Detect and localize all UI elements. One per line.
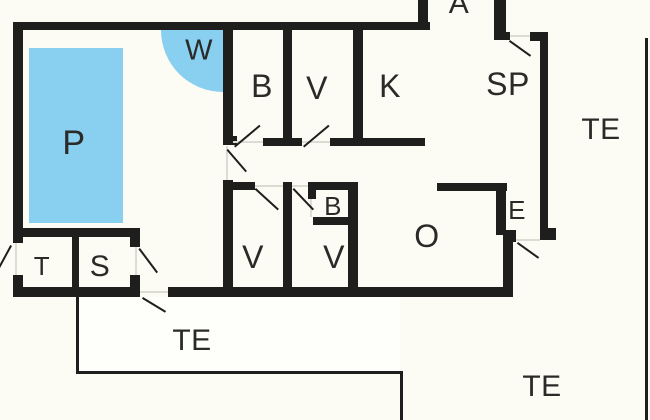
room-label-bath-north: B <box>251 70 273 102</box>
room-label-bedroom-north: V <box>306 72 328 104</box>
sp-door-gap <box>510 35 530 37</box>
wall-outer-top <box>13 22 430 30</box>
toilet-door-gap <box>15 243 17 275</box>
wall-bath-small-west-stub <box>308 182 316 199</box>
wall-pool-east-lower <box>223 180 233 287</box>
wall-outer-right-cap-south <box>540 228 556 240</box>
pool-door-leaf <box>226 149 247 172</box>
sauna-door-gap <box>135 247 137 275</box>
bedroom-north-door-leaf <box>303 125 329 148</box>
wall-alcove-west <box>418 0 428 30</box>
bedroom-sw-door-gap <box>255 185 283 187</box>
floorplan-canvas: PWBVKSPATEEOBVVTSTETE <box>0 0 650 420</box>
wall-v-k-south-wall <box>330 138 425 146</box>
wall-pool-east-upper <box>223 30 233 145</box>
wall-living-east <box>503 242 513 297</box>
wall-outer-bottom-main <box>168 287 513 297</box>
wall-entry-corner-block <box>503 230 516 242</box>
entry-door-gap <box>516 239 540 241</box>
room-label-terrace-east: TE <box>581 115 620 145</box>
wall-toilet-sauna-north <box>15 228 137 237</box>
bath-north-door-leaf <box>234 125 260 148</box>
room-label-sp-room: SP <box>486 68 530 100</box>
wall-alcove-east <box>494 0 506 33</box>
entry-door-leaf <box>517 242 539 259</box>
wall-outer-bottom-west <box>13 287 140 297</box>
bedroom-south-door-gap <box>292 185 308 187</box>
room-label-terrace-south: TE <box>172 326 211 356</box>
room-label-alcove: A <box>449 0 470 19</box>
room-label-sauna: S <box>90 252 111 282</box>
room-label-bedroom-sw: V <box>242 241 264 273</box>
sp-door-leaf <box>509 40 531 57</box>
terrace-door-gap <box>140 291 168 293</box>
room-label-living-room: O <box>414 220 439 252</box>
terrace-south-west-edge <box>76 297 79 374</box>
sauna-door-leaf <box>138 248 158 273</box>
wall-bath-north-south-wall <box>263 138 302 146</box>
room-label-toilet: T <box>34 253 50 279</box>
room-label-terrace-southeast: TE <box>522 372 561 402</box>
wall-sauna-east-lower <box>130 275 140 297</box>
room-label-bedroom-south: V <box>323 241 345 273</box>
room-label-entry: E <box>508 197 526 223</box>
wall-entry-west <box>496 191 506 235</box>
toilet-door-leaf <box>0 245 12 268</box>
room-label-pool-room: P <box>62 126 85 160</box>
wall-entry-north <box>437 183 507 191</box>
terrace-south-east-edge <box>400 371 403 420</box>
wall-b-v-divider-north <box>283 30 292 146</box>
wall-alcove-east-cap <box>494 32 510 40</box>
terrace-south-fill <box>79 297 400 371</box>
wall-toilet-sauna-divider <box>72 237 79 287</box>
wall-hall-south-wall-west <box>223 182 255 190</box>
wall-v-v-divider-south <box>283 182 292 287</box>
wall-outer-left-upper <box>13 22 23 243</box>
wall-bedroom-south-east <box>348 182 358 287</box>
wall-sauna-east-upper <box>130 228 140 247</box>
room-label-whirlpool: W <box>185 37 213 66</box>
terrace-south-bottom-edge <box>76 371 403 374</box>
room-label-kitchen: K <box>379 70 401 102</box>
wall-v-k-divider <box>353 30 363 146</box>
room-label-bath-small: B <box>324 193 342 219</box>
bedroom-sw-door-leaf <box>255 188 279 210</box>
terrace-east-edge <box>645 38 648 420</box>
wall-outer-right <box>540 32 548 240</box>
